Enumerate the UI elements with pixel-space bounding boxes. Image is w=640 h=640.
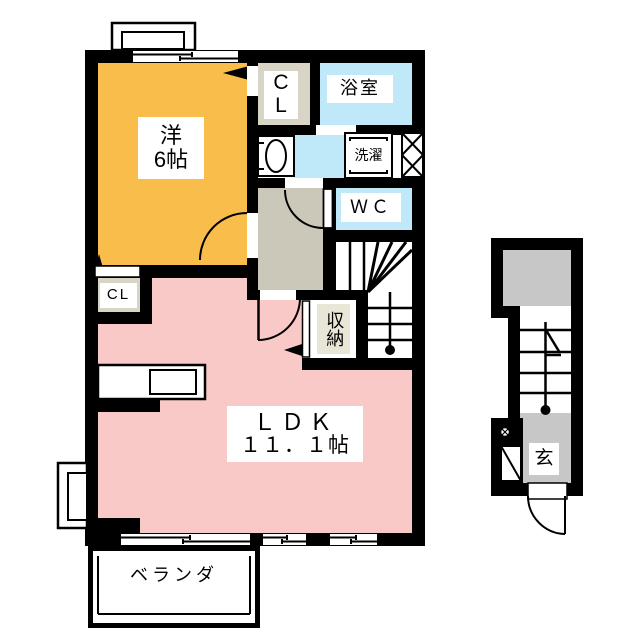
ldk-size: １１．１帖 (240, 435, 350, 458)
window-top-exterior-inner (122, 32, 184, 49)
window-west-room (133, 51, 238, 62)
kitchen-sink-icon (150, 370, 196, 394)
room-label-laundry: 洗濯 (349, 141, 388, 170)
ldk-floor-mid (247, 298, 302, 370)
closet-top-line1: C (273, 72, 288, 95)
opening-cl-ldk (95, 266, 140, 277)
annex-wall-right (571, 238, 583, 496)
wall-wc-stairs (323, 230, 412, 242)
window-ldk-2 (263, 534, 306, 545)
room-label-closet-ldk: CL (100, 283, 137, 308)
washstand-area (294, 135, 345, 178)
closet-top-line2: L (275, 95, 287, 118)
room-label-storage: 収納 (317, 304, 350, 354)
opening-storage-door (303, 301, 310, 357)
wall-cl-ldk-bottom (85, 312, 152, 324)
hallway-floor (258, 188, 323, 290)
opening-entrance-door (528, 483, 567, 499)
stair-start-dot (385, 345, 395, 355)
washstand-basin-icon (266, 140, 286, 172)
opening-washroom-door (285, 178, 323, 188)
annex-wall-bottom-left (491, 483, 528, 496)
opening-ldk-door (260, 290, 296, 300)
wall-kitchen-stub (98, 400, 160, 412)
western-size: 6帖 (154, 148, 188, 172)
window-louver (402, 133, 423, 177)
room-label-closet-top: C L (264, 71, 298, 119)
wall-storage-stairs (356, 292, 368, 358)
room-label-bathroom: 浴室 (327, 75, 393, 103)
room-label-western: 洋 6帖 (138, 117, 204, 179)
door-arc-entrance (528, 496, 565, 534)
room-label-entrance: 玄 (529, 443, 559, 475)
window-ldk-1 (121, 534, 250, 545)
window-ldk-3 (330, 534, 377, 545)
annex-wall-step (491, 306, 520, 318)
annex-wall-left-lower (508, 318, 520, 428)
window-left-exterior-inner (68, 473, 87, 520)
room-label-toilet: ＷＣ (341, 193, 401, 222)
wall-washroom-hall (247, 178, 412, 188)
opening-west-room-door (247, 213, 258, 258)
room-label-veranda: ベランダ (114, 559, 234, 592)
annex-wall-top (491, 238, 583, 250)
ldk-name: ＬＤＫ (253, 410, 337, 435)
room-label-ldk: ＬＤＫ １１．１帖 (227, 406, 363, 462)
western-name: 洋 (160, 124, 182, 148)
annex-landing-floor (503, 250, 571, 306)
door-panel-washroom (324, 189, 333, 228)
wall-right (412, 50, 425, 546)
annex-wall-bottom-right (567, 483, 583, 496)
annex-stair-start-dot (541, 405, 551, 415)
floorplan-canvas: 洋 6帖 C L 浴室 洗濯 ＷＣ 収納 CL ＬＤＫ １１．１帖 ベランダ 玄 (0, 0, 640, 640)
wall-storage-ldk-bottom (302, 358, 412, 370)
opening-cl-top (247, 66, 258, 96)
